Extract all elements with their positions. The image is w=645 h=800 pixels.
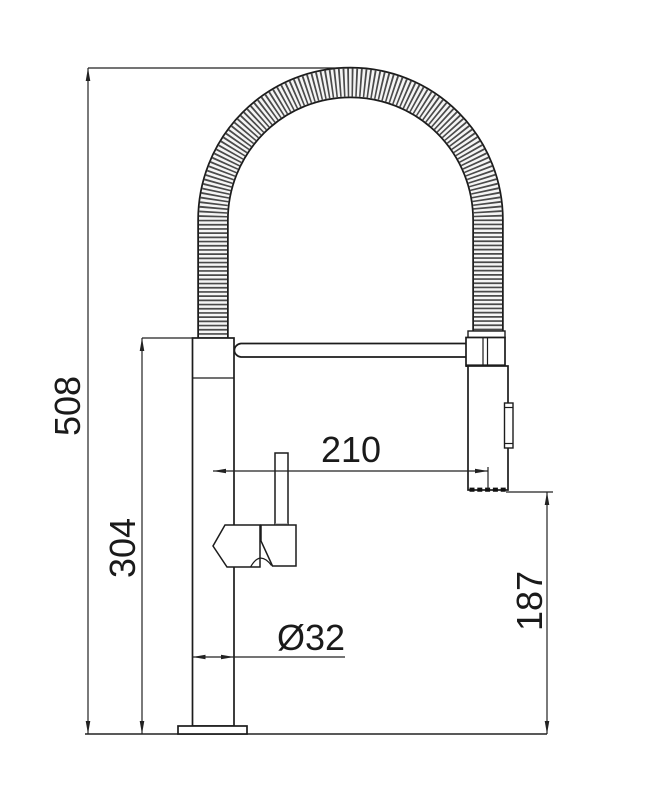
spring-hose-fill <box>213 83 488 340</box>
dimension-spout-reach: 210 <box>213 429 488 489</box>
handle-lever-stick <box>275 453 288 525</box>
hose-collar <box>468 331 505 338</box>
dimension-head-clearance: 187 <box>506 492 553 734</box>
arrowhead-down <box>140 721 145 734</box>
spray-head-slider-clip <box>505 403 514 448</box>
spring-hose <box>213 83 488 340</box>
dim-label-total-height: 508 <box>47 376 88 436</box>
arrowhead-up <box>545 492 550 505</box>
arrowhead-down <box>545 721 550 734</box>
dim-label-base-diameter: Ø32 <box>277 617 345 658</box>
base-plate <box>178 726 247 734</box>
arrowhead-up <box>86 68 91 81</box>
technical-drawing-canvas: 508 304 210 Ø32 <box>0 0 645 800</box>
faucet-technical-drawing: 508 304 210 Ø32 <box>0 0 645 800</box>
arrowhead-down <box>86 721 91 734</box>
spray-head <box>466 331 513 490</box>
arrowhead-up <box>140 338 145 351</box>
dim-label-head-clearance: 187 <box>509 571 550 631</box>
dim-label-spout-reach: 210 <box>321 429 381 470</box>
spout-arm <box>234 344 466 358</box>
dim-label-body-height: 304 <box>102 518 143 578</box>
dimension-body-height: 304 <box>102 338 193 734</box>
hose-connector-block <box>466 338 505 367</box>
